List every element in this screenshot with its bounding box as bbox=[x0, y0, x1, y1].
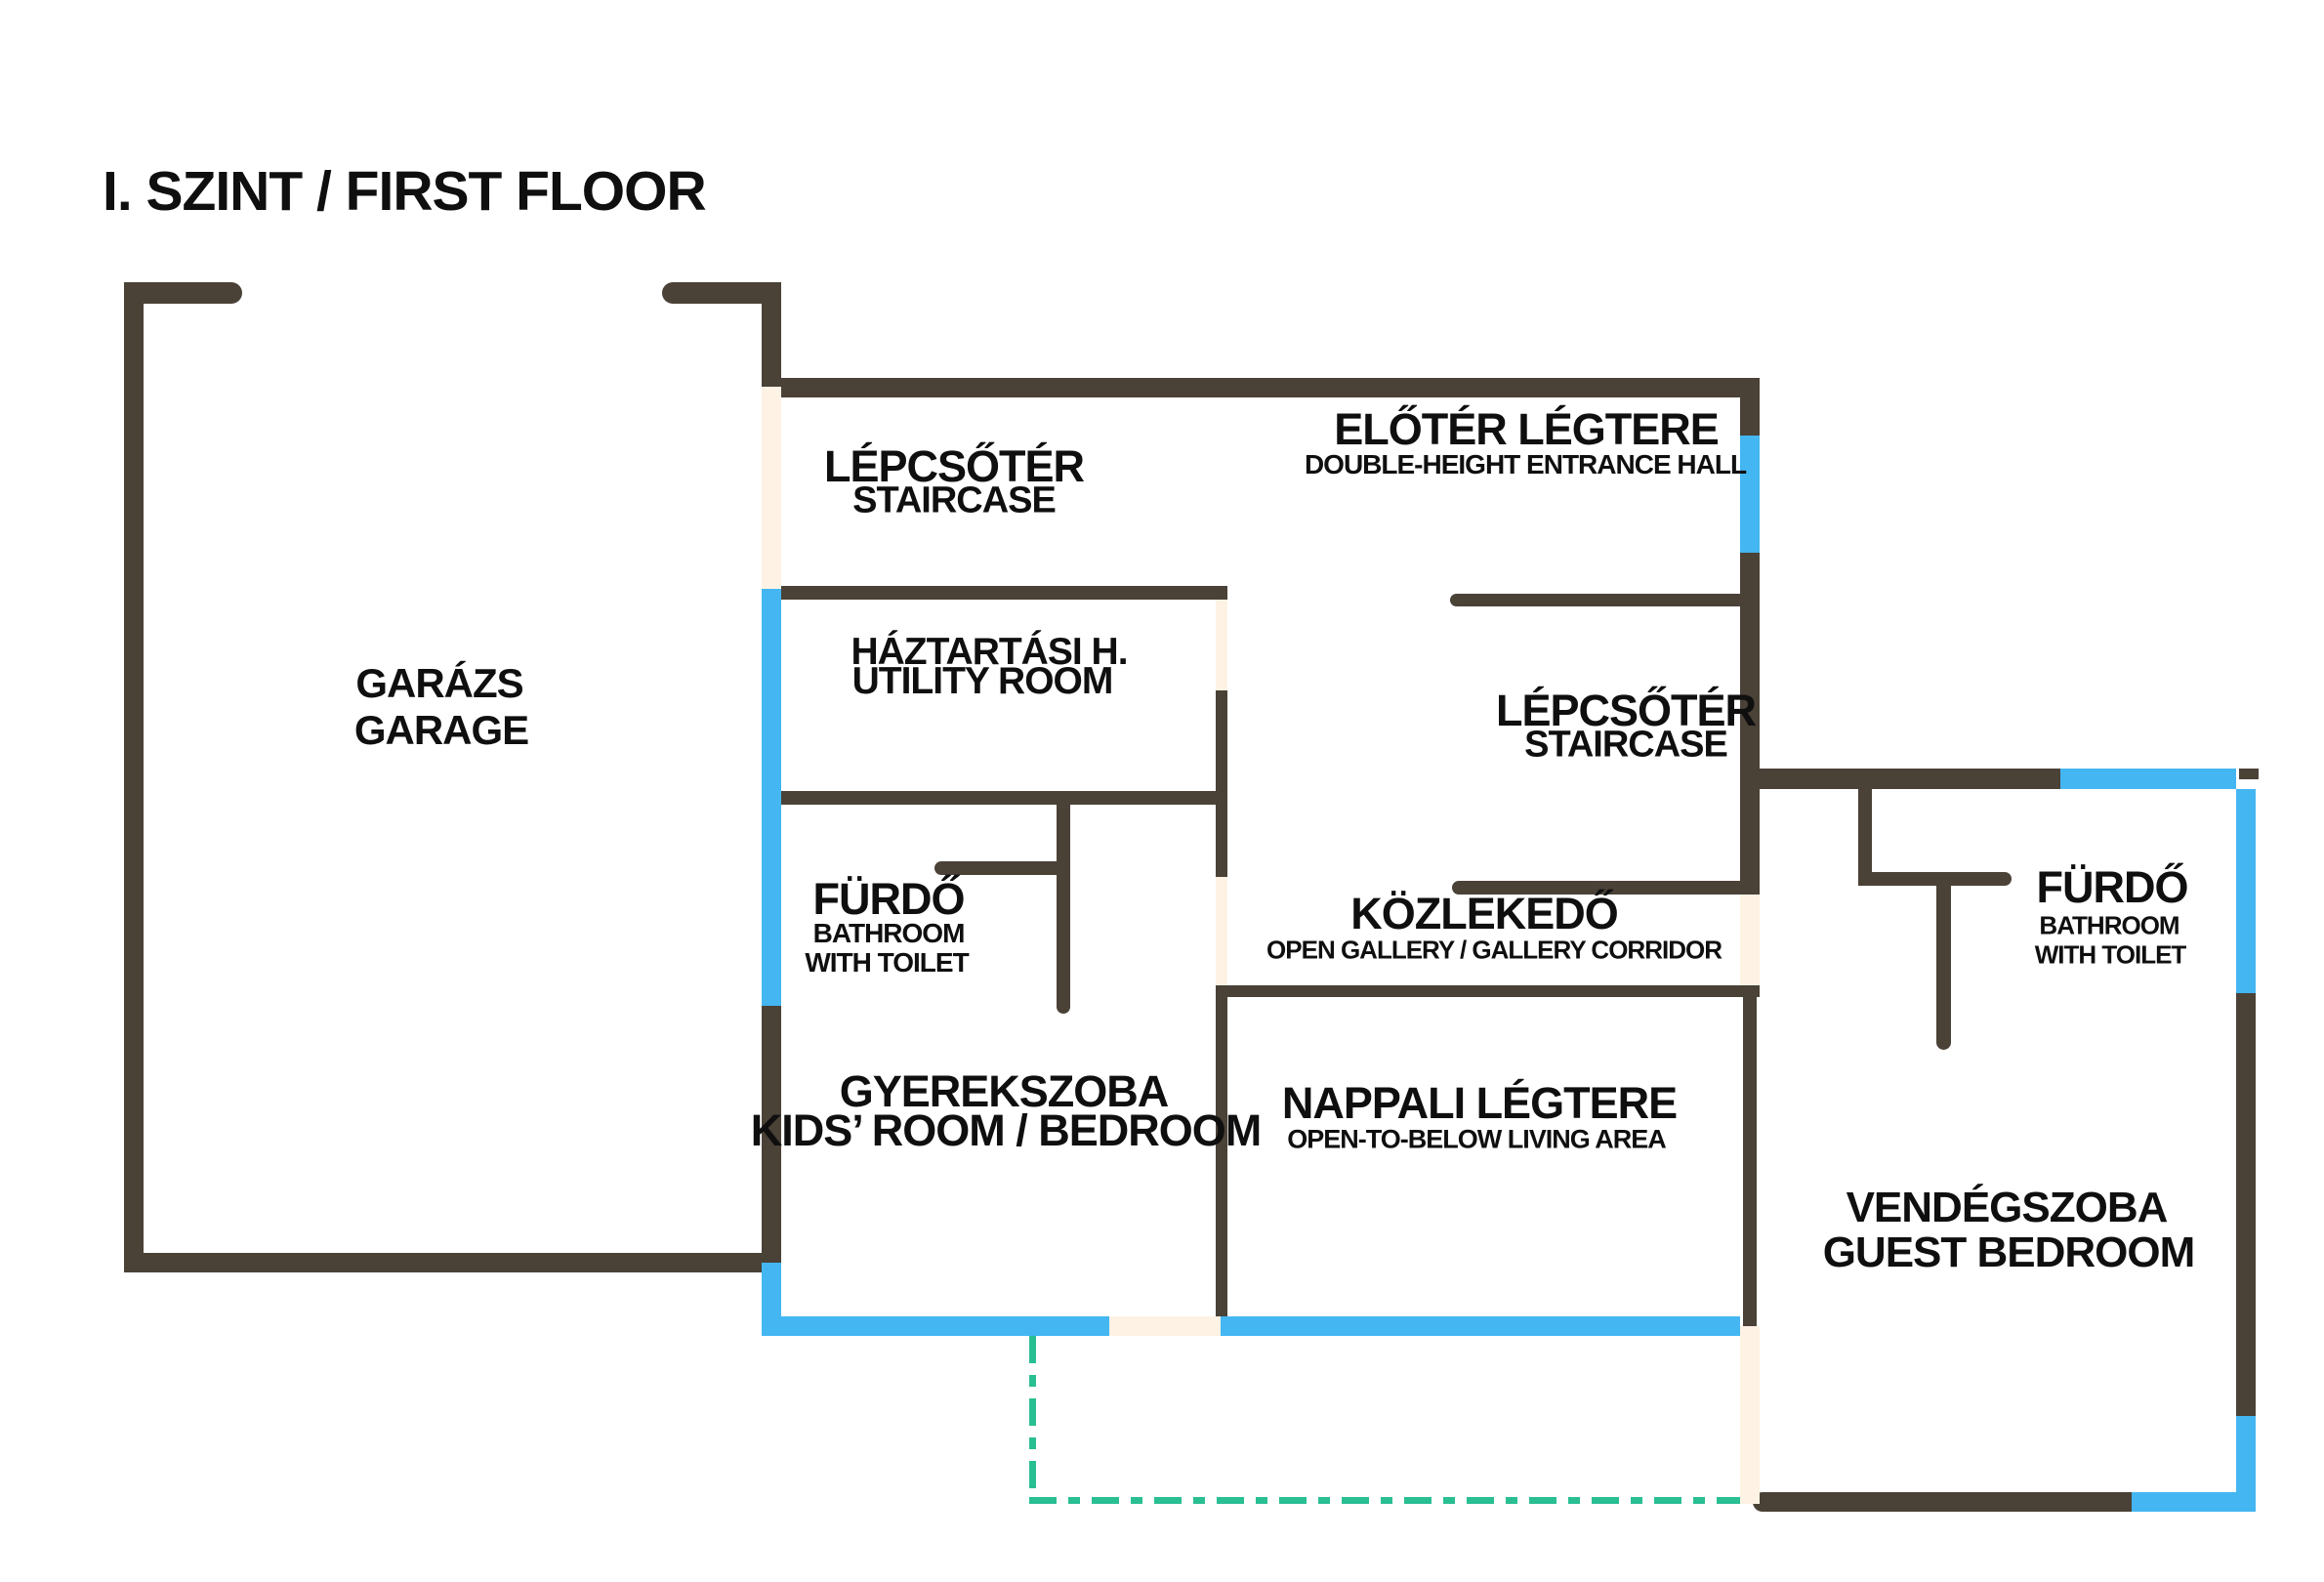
room-label-garage-line2: GARAGE bbox=[354, 707, 528, 754]
bathroom1-half-wall bbox=[934, 861, 1070, 875]
room-label-utility-room-line2: UTILITY ROOM bbox=[852, 660, 1113, 703]
room-label-gallery-corridor-line1: KÖZLEKEDŐ bbox=[1350, 889, 1618, 939]
mid-section-top-wall bbox=[781, 378, 1760, 397]
terrace-outline-left bbox=[1029, 1336, 1036, 1502]
room-label-garage-line1: GARÁZS bbox=[355, 660, 522, 707]
right-section-corner-block bbox=[2239, 769, 2259, 779]
center-column-wall-mid bbox=[1216, 690, 1227, 877]
room-label-bathroom-2-line2: BATHROOM bbox=[2039, 911, 2179, 941]
bathroom1-top-wall bbox=[781, 791, 1227, 805]
east-outer-wall-mid bbox=[2236, 993, 2256, 1416]
corridor-bottom-wall bbox=[1227, 985, 1760, 997]
guest-bottom-wall bbox=[1753, 1492, 2132, 1512]
kids-room-bottom-door bbox=[1109, 1316, 1221, 1336]
room-label-bathroom-2-line3: WITH TOILET bbox=[2035, 940, 2186, 971]
room-label-bathroom-2-line1: FÜRDŐ bbox=[2037, 862, 2188, 913]
room-label-gallery-corridor-line2: OPEN GALLERY / GALLERY CORRIDOR bbox=[1266, 936, 1722, 966]
east-column-wide-opening bbox=[1740, 1326, 1760, 1504]
bathroom2-partition-vertical bbox=[1858, 789, 1872, 879]
room-label-entrance-hall-line2: DOUBLE-HEIGHT ENTRANCE HALL bbox=[1305, 449, 1746, 480]
room-label-bathroom-1-line3: WITH TOILET bbox=[805, 947, 968, 978]
garage-top-wall-left-stub bbox=[124, 282, 242, 304]
bathroom2-descender-wall bbox=[1936, 886, 1951, 1050]
room-label-entrance-hall-line1: ELŐTÉR LÉGTERE bbox=[1334, 404, 1719, 455]
center-column-door-upper bbox=[1216, 600, 1227, 690]
right-section-top-window bbox=[2060, 769, 2236, 789]
utility-top-wall bbox=[781, 586, 1227, 600]
page-title: I. SZINT / FIRST FLOOR bbox=[103, 159, 706, 224]
guest-bottom-window bbox=[2132, 1492, 2256, 1512]
east-outer-wall-window bbox=[2236, 789, 2256, 993]
west-column-window bbox=[762, 589, 781, 1006]
room-label-bathroom-1-line2: BATHROOM bbox=[813, 918, 965, 949]
west-column-door-opening bbox=[762, 387, 781, 589]
room-label-staircase-2-line2: STAIRCASE bbox=[1524, 725, 1727, 767]
room-label-living-area-line2: OPEN-TO-BELOW LIVING AREA bbox=[1287, 1125, 1666, 1155]
floor-plan: I. SZINT / FIRST FLOOR GARÁZSGARAGELÉPCS… bbox=[0, 0, 2324, 1582]
room-label-guest-bedroom-line2: GUEST BEDROOM bbox=[1823, 1228, 2195, 1277]
room-label-guest-bedroom-line1: VENDÉGSZOBA bbox=[1847, 1184, 2168, 1232]
center-column-door-lower bbox=[1216, 877, 1227, 985]
living-bottom-window bbox=[1221, 1316, 1740, 1336]
garage-bottom-wall bbox=[124, 1253, 771, 1272]
entrance-hall-half-wall bbox=[1450, 594, 1760, 606]
west-column-upper-wall bbox=[762, 282, 781, 387]
room-label-kids-room-line2: KIDS’ ROOM / BEDROOM bbox=[751, 1105, 1262, 1156]
room-label-living-area-line1: NAPPALI LÉGTERE bbox=[1282, 1078, 1677, 1129]
terrace-outline-bottom bbox=[1029, 1497, 1740, 1504]
east-column-upper-wall bbox=[1740, 378, 1760, 436]
right-section-top-wall bbox=[1760, 769, 2060, 789]
bathroom2-half-wall bbox=[1858, 872, 2012, 886]
east-column-door bbox=[1740, 895, 1760, 985]
kids-room-bottom-window bbox=[762, 1316, 1109, 1336]
garage-left-wall bbox=[124, 282, 144, 1272]
room-label-staircase-1-line2: STAIRCASE bbox=[852, 480, 1056, 522]
east-column-lower-wall bbox=[1743, 985, 1757, 1326]
bathroom1-partition-vertical bbox=[1057, 805, 1070, 1014]
